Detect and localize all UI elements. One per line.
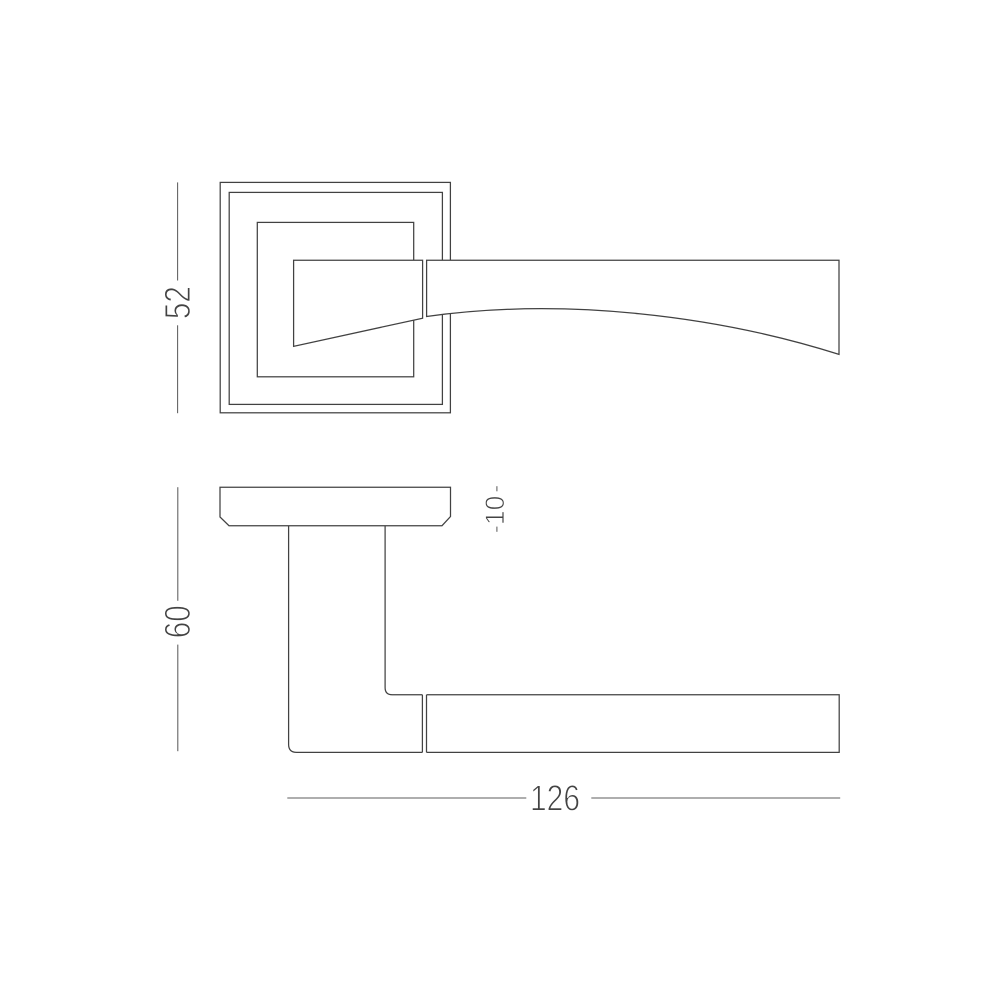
svg-text:52: 52: [157, 286, 198, 319]
svg-text:10: 10: [480, 496, 510, 525]
svg-text:126: 126: [530, 777, 580, 818]
svg-text:60: 60: [157, 605, 198, 638]
